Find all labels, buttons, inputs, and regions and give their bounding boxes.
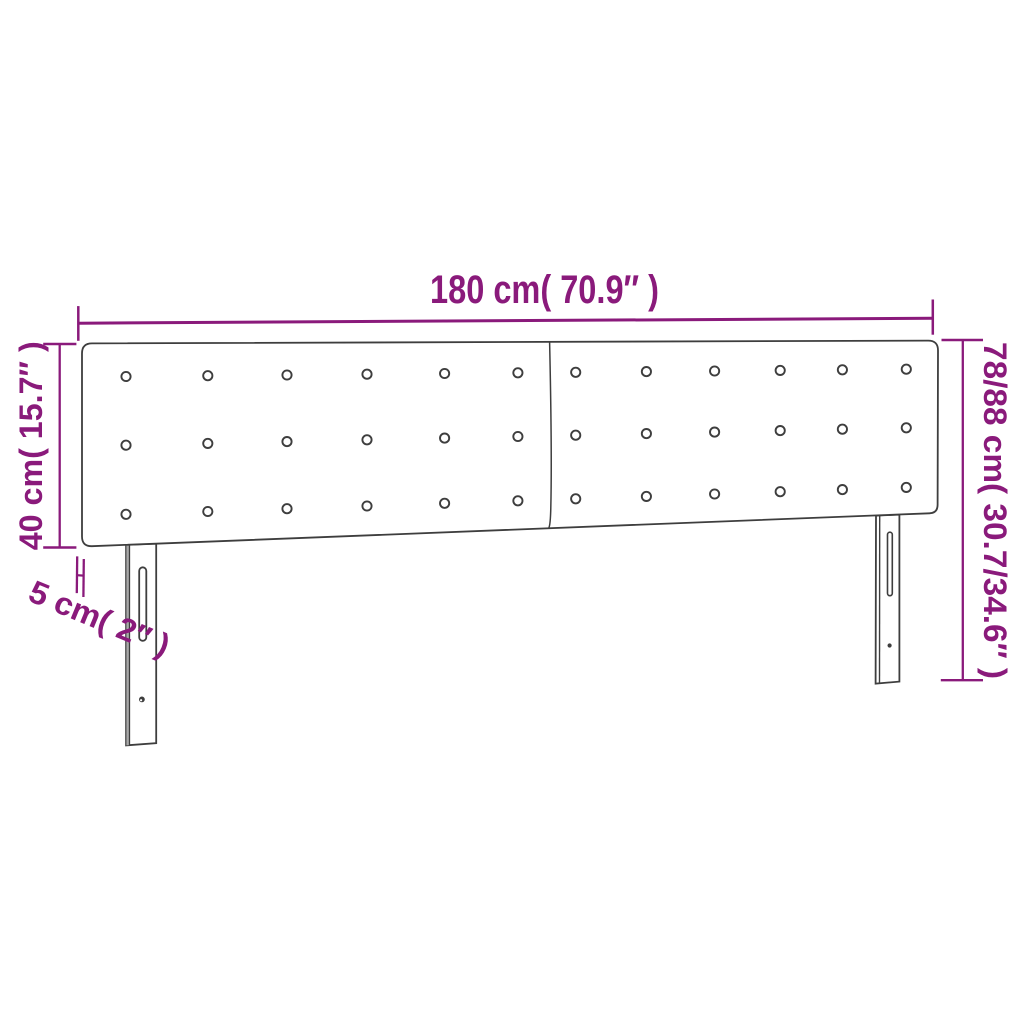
svg-text:40 cm( 15.7″ ): 40 cm( 15.7″ ) bbox=[13, 341, 49, 550]
svg-text:78/88 cm( 30.7/34.6″ ): 78/88 cm( 30.7/34.6″ ) bbox=[977, 342, 1013, 679]
svg-text:180 cm( 70.9″ ): 180 cm( 70.9″ ) bbox=[430, 268, 659, 312]
